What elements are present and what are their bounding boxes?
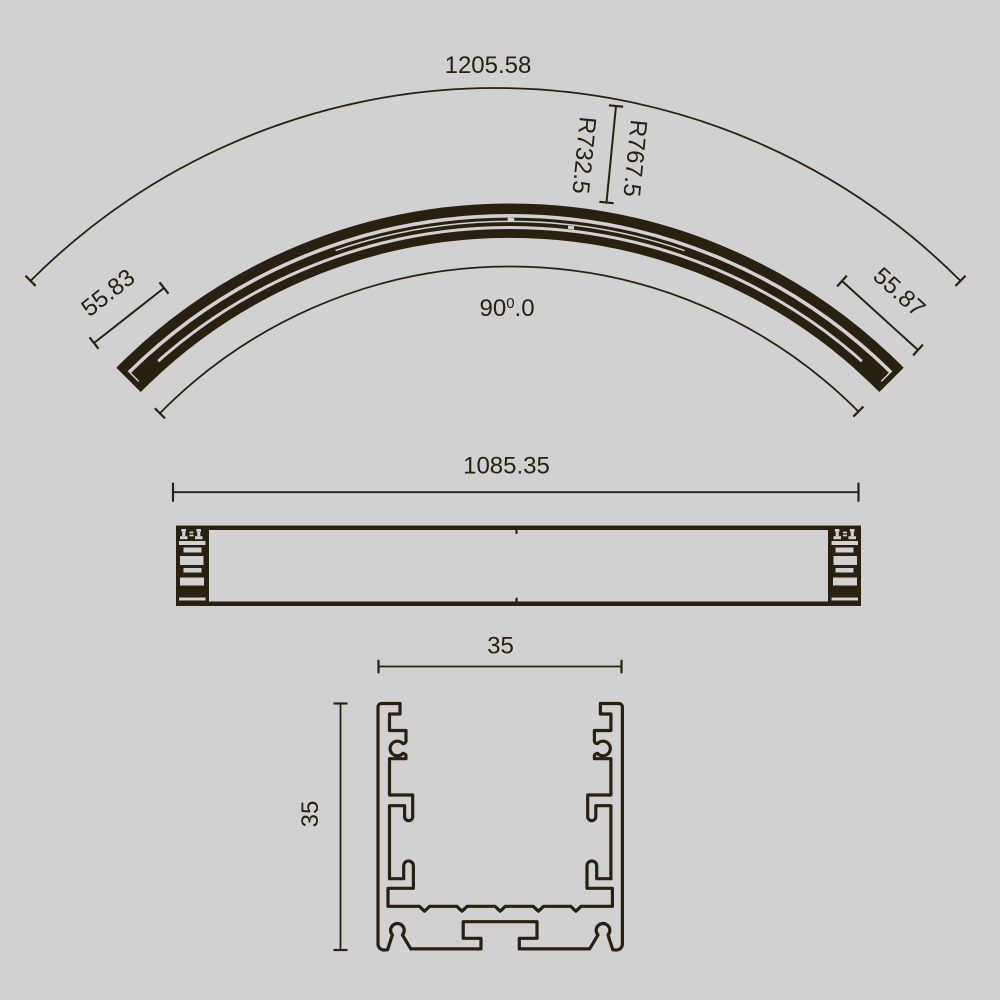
svg-text:35: 35 <box>487 633 514 660</box>
svg-text:1205.58: 1205.58 <box>445 52 532 79</box>
svg-text:35: 35 <box>297 801 324 828</box>
svg-text:1085.35: 1085.35 <box>463 453 550 480</box>
